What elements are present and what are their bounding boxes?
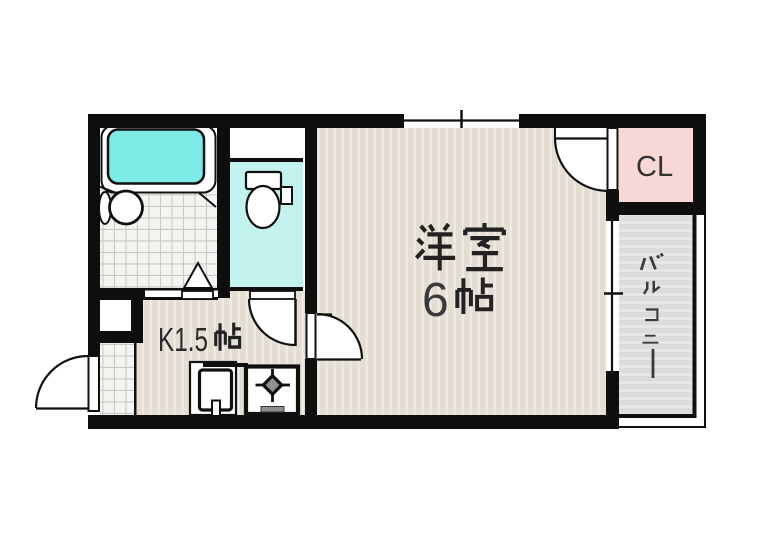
svg-text:K1.5: K1.5 [158, 321, 208, 358]
svg-text:CL: CL [636, 151, 673, 183]
svg-text:6: 6 [422, 274, 449, 327]
